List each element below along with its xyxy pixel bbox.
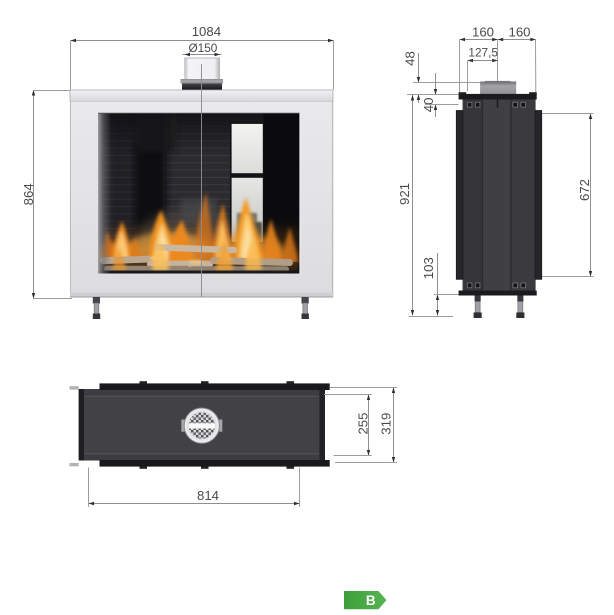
svg-text:48: 48 [403,51,418,66]
svg-text:672: 672 [577,179,592,201]
svg-text:319: 319 [379,413,394,435]
svg-text:103: 103 [421,257,436,279]
svg-text:127,5: 127,5 [468,46,498,60]
svg-text:B: B [366,593,376,608]
svg-text:814: 814 [197,488,219,503]
svg-text:Ø150: Ø150 [188,41,217,55]
svg-text:1084: 1084 [192,24,221,39]
svg-text:160: 160 [472,24,494,39]
svg-text:921: 921 [397,183,412,205]
svg-text:160: 160 [508,24,530,39]
